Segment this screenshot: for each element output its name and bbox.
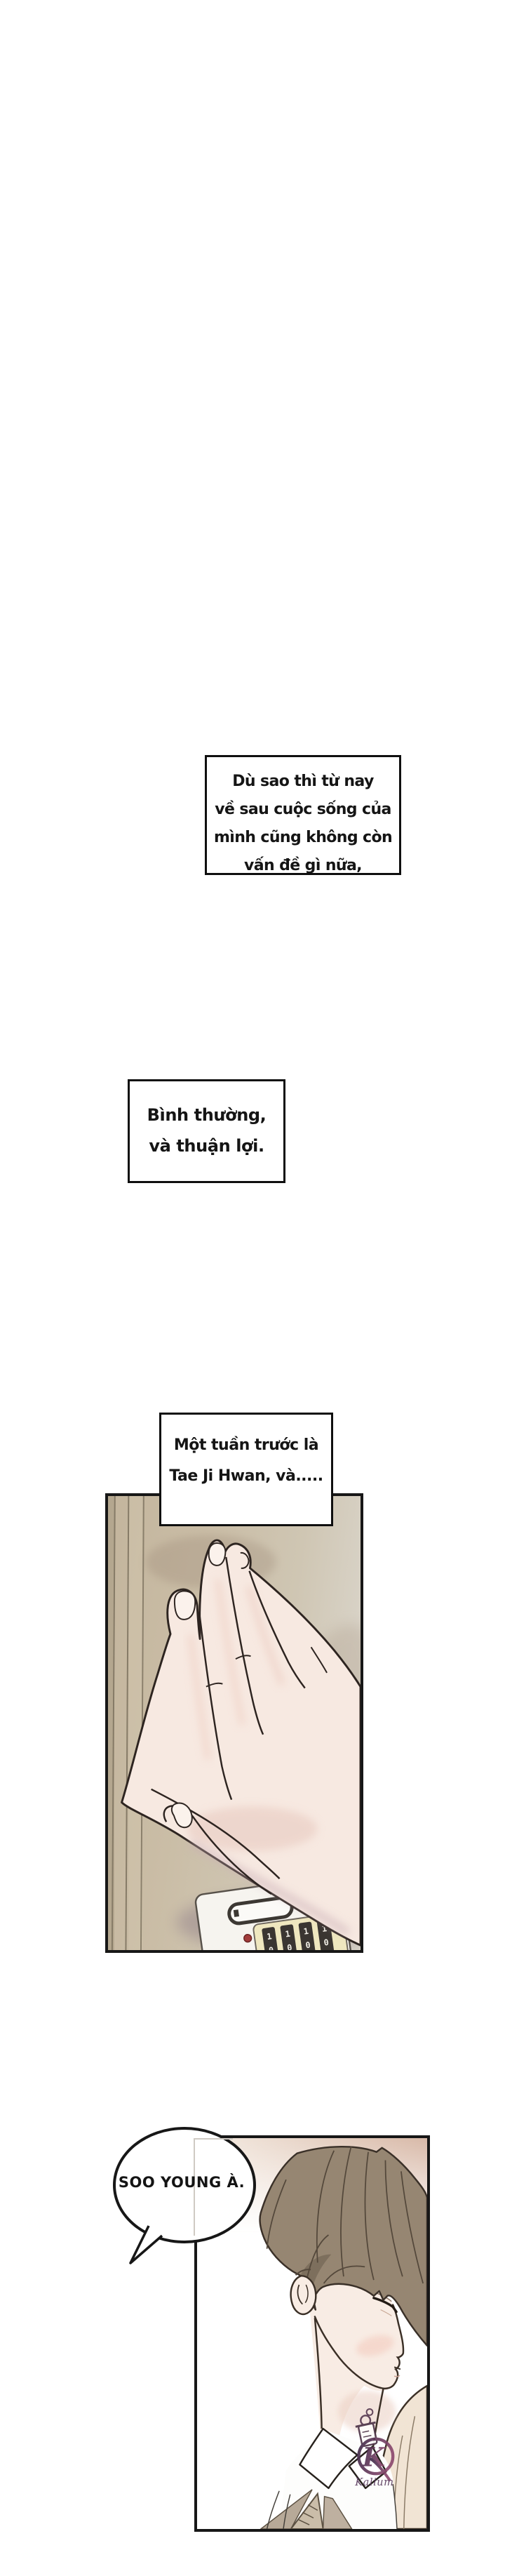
narration-line: về sau cuộc sống của xyxy=(207,796,399,824)
logo-letter: K xyxy=(362,2441,386,2472)
speech-bubble-text: SOO YOUNG À. xyxy=(113,2127,250,2238)
fingernail xyxy=(175,1591,195,1620)
logo-brand-text: Kalium xyxy=(354,2476,393,2488)
webtoon-page: Dù sao thì từ nay về sau cuộc sống của m… xyxy=(0,0,505,2576)
lock-sensor xyxy=(234,1909,239,1917)
narration-box-2: Bình thường, và thuận lợi. xyxy=(128,1079,285,1183)
ear xyxy=(291,2276,316,2314)
narration-box-1: Dù sao thì từ nay về sau cuộc sống của m… xyxy=(205,755,401,875)
narration-line: Bình thường, xyxy=(130,1100,283,1130)
narration-line: Tae Ji Hwan, và..... xyxy=(161,1461,331,1492)
narration-line: vấn đề gì nữa, xyxy=(207,852,399,880)
palm-shading xyxy=(187,1807,318,1851)
door-highlight-strip xyxy=(128,1496,142,1950)
narration-box-3: Một tuần trước là Tae Ji Hwan, và..... xyxy=(159,1413,333,1526)
narration-line: Một tuần trước là xyxy=(161,1430,331,1461)
narration-line: và thuận lợi. xyxy=(130,1130,283,1161)
lock-led xyxy=(243,1934,252,1942)
hand-on-door-illustration: 1 1 1 1 0 0 0 0 xyxy=(108,1496,361,1950)
fingernail xyxy=(209,1543,226,1566)
narration-line: mình cũng không còn xyxy=(207,824,399,852)
narration-line: Dù sao thì từ nay xyxy=(207,768,399,796)
panel-hand-on-door: 1 1 1 1 0 0 0 0 xyxy=(105,1493,363,1953)
